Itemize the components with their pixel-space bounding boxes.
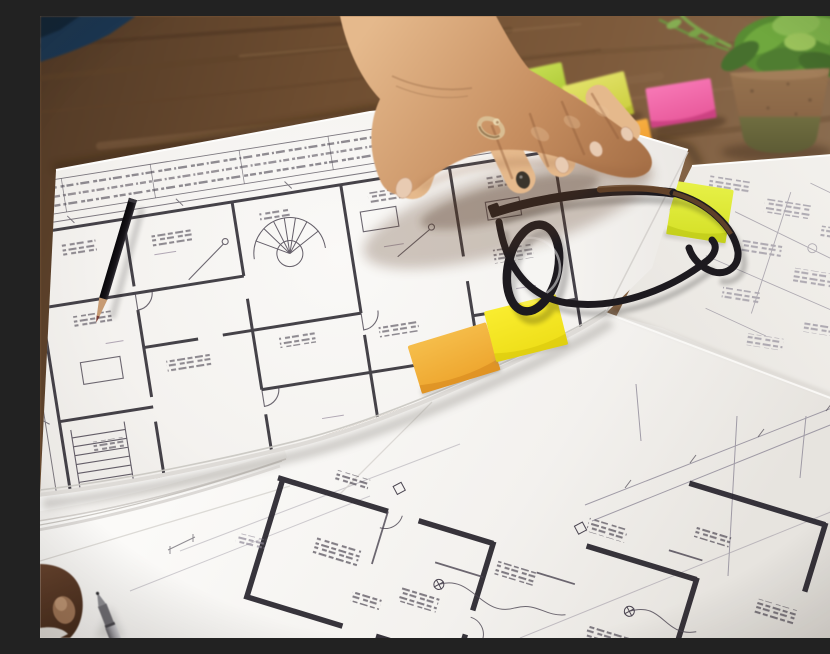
photo-architect-desk: Wooden desk surface Dark blue object at … [40, 16, 830, 638]
vignette [40, 16, 830, 638]
scene-canvas: Wooden desk surface Dark blue object at … [40, 16, 830, 638]
